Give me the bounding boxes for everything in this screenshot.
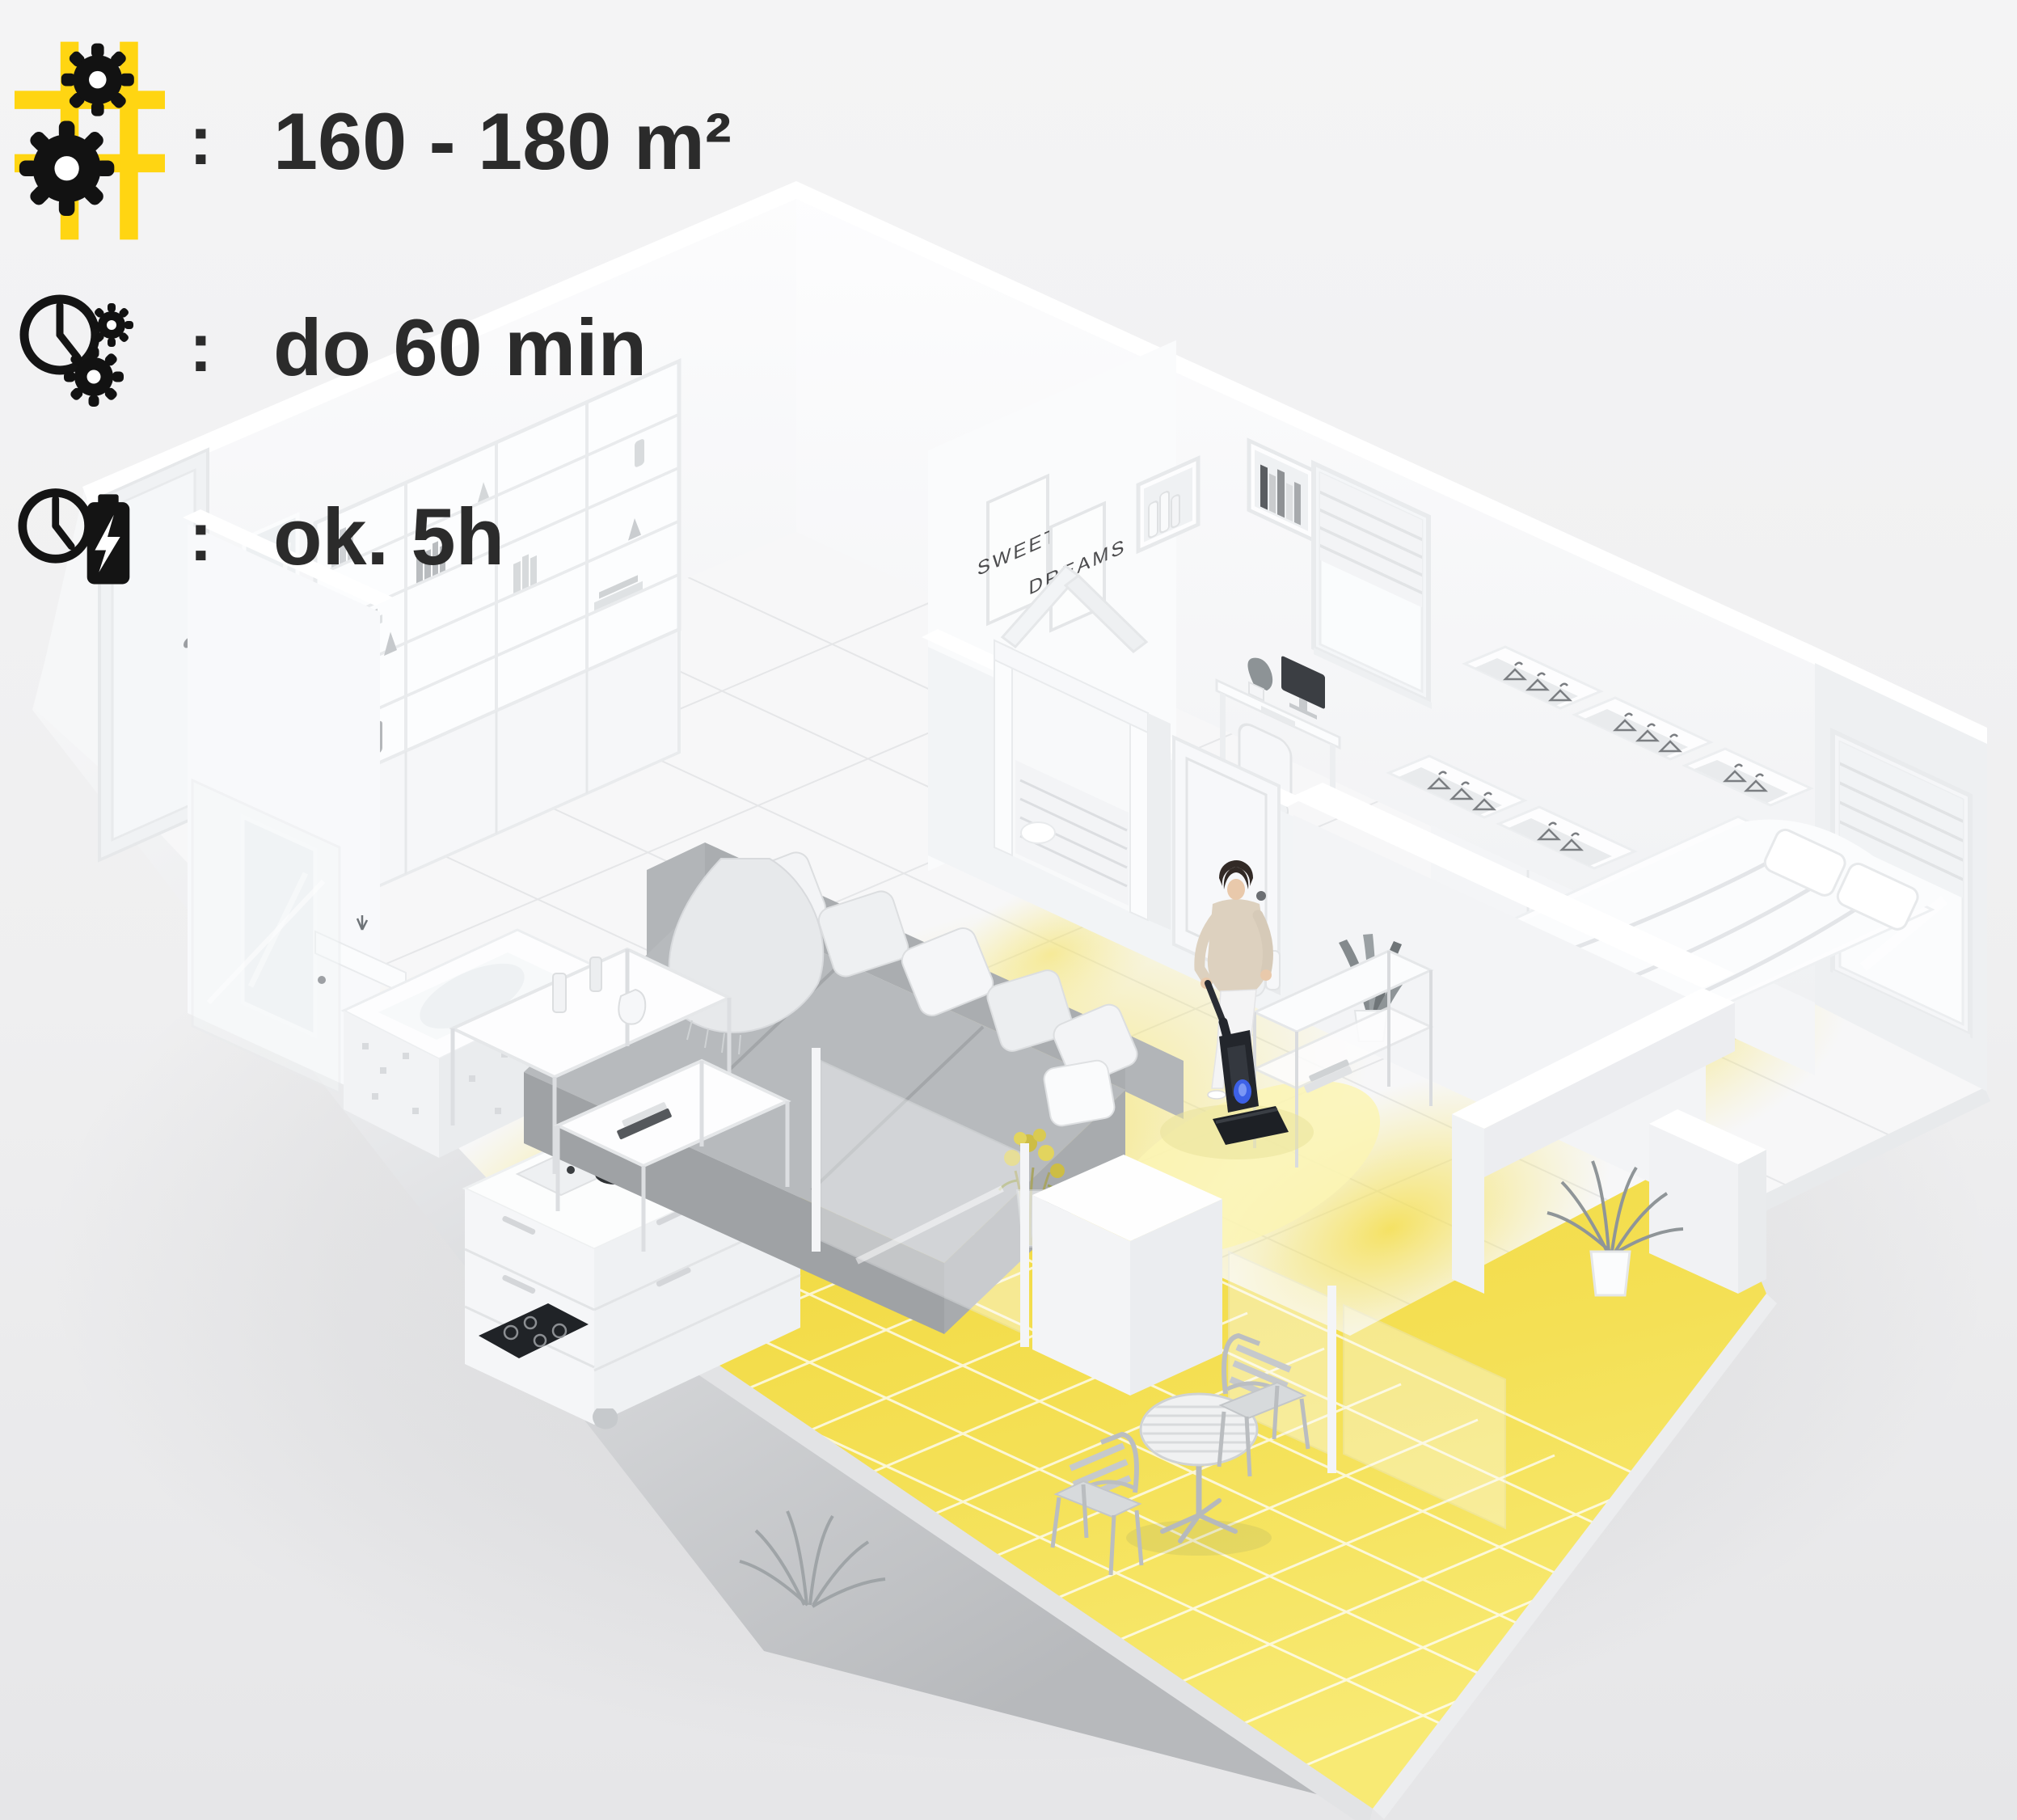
- spec-row-coverage-area: : 160 - 180 m²: [15, 40, 732, 241]
- spec-value-charging-time: ok. 5h: [273, 496, 504, 576]
- spec-row-runtime: : do 60 min: [15, 285, 647, 410]
- clock-battery-icon: [15, 475, 189, 598]
- spec-row-charging-time: : ok. 5h: [15, 475, 504, 598]
- balcony-window-block: [1032, 1155, 1222, 1396]
- spec-value-coverage-area: 160 - 180 m²: [273, 101, 732, 181]
- floor-grid-gears-icon: [15, 40, 189, 241]
- spec-value-runtime: do 60 min: [273, 307, 647, 387]
- spec-separator-charging: :: [189, 502, 241, 572]
- spec-separator-area: :: [189, 106, 241, 175]
- specs-panel: : 160 - 180 m²: [0, 0, 889, 647]
- cleaning-infographic: SWEET DREAMS: [0, 0, 2017, 1820]
- face: [1227, 879, 1245, 900]
- spec-separator-runtime: :: [189, 313, 241, 382]
- clock-gears-icon: [15, 285, 189, 410]
